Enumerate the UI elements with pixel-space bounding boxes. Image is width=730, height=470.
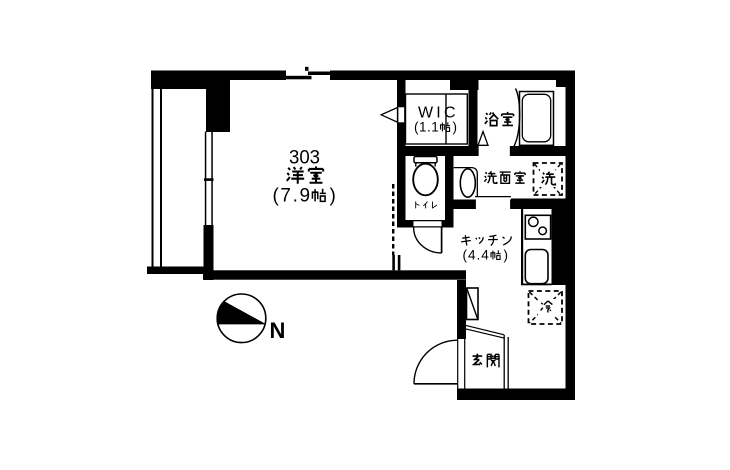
svg-text:303: 303	[289, 147, 320, 169]
svg-text:): )	[330, 186, 336, 207]
svg-text:): )	[453, 120, 458, 135]
svg-text:N: N	[270, 318, 286, 343]
svg-text:): )	[504, 248, 509, 263]
svg-text:(1.1: (1.1	[414, 120, 439, 135]
svg-text:(4.4: (4.4	[463, 248, 490, 263]
svg-text:(7.9: (7.9	[273, 186, 312, 207]
